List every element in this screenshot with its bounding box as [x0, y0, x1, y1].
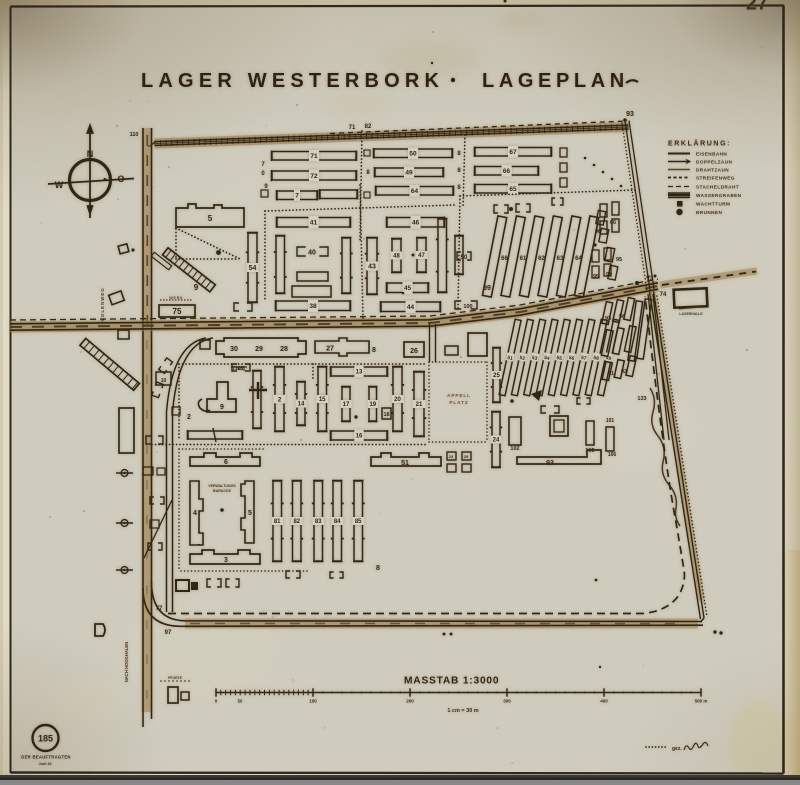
svg-text:LAGEPLAN: LAGEPLAN [482, 70, 629, 92]
svg-text:W E R K: W E R K [169, 296, 183, 300]
svg-text:PLATZ: PLATZ [449, 400, 468, 405]
svg-text:16: 16 [356, 434, 363, 440]
svg-text:24: 24 [493, 438, 500, 444]
svg-text:93: 93 [605, 316, 611, 322]
svg-text:8: 8 [376, 565, 380, 572]
svg-text:13: 13 [356, 370, 363, 376]
svg-text:101: 101 [606, 418, 615, 424]
svg-text:65: 65 [509, 186, 517, 193]
svg-text:40: 40 [308, 250, 316, 257]
svg-text:200: 200 [406, 699, 414, 704]
svg-text:41: 41 [310, 220, 318, 227]
svg-text:102: 102 [510, 446, 519, 452]
svg-text:71: 71 [310, 153, 318, 160]
svg-text:EISENBAHN: EISENBAHN [696, 152, 727, 157]
svg-text:23: 23 [449, 454, 454, 459]
svg-text:17: 17 [343, 402, 350, 408]
svg-text:49: 49 [405, 170, 413, 177]
svg-text:DOPPELZAUN: DOPPELZAUN [696, 160, 733, 165]
svg-text:15: 15 [319, 397, 326, 403]
svg-text:O: O [117, 174, 124, 184]
svg-text:133: 133 [637, 396, 646, 402]
svg-text:20: 20 [394, 397, 401, 403]
svg-text:45: 45 [404, 285, 412, 292]
svg-text:NACH HOOGHALEN: NACH HOOGHALEN [124, 642, 129, 682]
svg-text:30: 30 [230, 346, 238, 353]
svg-text:VERWALTUNGS: VERWALTUNGS [208, 484, 236, 488]
svg-text:51: 51 [401, 460, 409, 467]
svg-text:1 cm = 30 m: 1 cm = 30 m [447, 708, 478, 714]
svg-text:43: 43 [368, 264, 376, 271]
svg-text:W: W [55, 180, 64, 190]
svg-text:66: 66 [503, 168, 511, 175]
svg-text:82: 82 [365, 124, 372, 130]
svg-text:4: 4 [193, 510, 197, 517]
svg-text:19: 19 [369, 402, 376, 408]
svg-text:93: 93 [546, 460, 554, 467]
svg-text:84: 84 [334, 519, 341, 525]
svg-text:93: 93 [626, 111, 634, 118]
svg-text:50: 50 [461, 255, 468, 261]
svg-text:95: 95 [593, 274, 599, 280]
svg-text:LAGERHALLE: LAGERHALLE [679, 312, 703, 316]
svg-text:2: 2 [278, 396, 282, 403]
svg-text:82: 82 [293, 519, 300, 525]
svg-text:92: 92 [621, 369, 627, 375]
svg-text:75: 75 [173, 307, 182, 316]
svg-text:44: 44 [407, 304, 415, 311]
svg-text:54: 54 [249, 265, 257, 272]
svg-text:27: 27 [326, 346, 334, 353]
svg-text:48: 48 [393, 254, 400, 260]
svg-text:26: 26 [410, 348, 418, 355]
svg-text:81: 81 [274, 519, 281, 525]
svg-text:300: 300 [503, 699, 511, 704]
svg-text:100: 100 [309, 699, 317, 704]
svg-text:500 m: 500 m [695, 699, 708, 704]
svg-text:[103]: [103] [233, 366, 245, 372]
svg-text:97: 97 [165, 630, 172, 636]
svg-text:7: 7 [295, 193, 299, 200]
svg-text:95: 95 [616, 257, 622, 263]
svg-text:100: 100 [463, 304, 472, 310]
svg-text:98: 98 [606, 272, 612, 278]
svg-text:77: 77 [156, 606, 163, 612]
svg-text:M O L E N W E G: M O L E N W E G [100, 288, 105, 321]
svg-text:21: 21 [416, 402, 423, 408]
svg-text:50: 50 [409, 151, 417, 158]
svg-text:2: 2 [187, 414, 191, 421]
svg-text:9: 9 [220, 404, 224, 411]
svg-text:MASSTAB 1:3000: MASSTAB 1:3000 [404, 676, 499, 687]
svg-text:110: 110 [130, 132, 139, 138]
svg-text:67: 67 [509, 149, 517, 156]
svg-text:BARACKE: BARACKE [213, 489, 232, 493]
svg-text:98: 98 [619, 314, 625, 320]
svg-text:BRUNNEN: BRUNNEN [696, 210, 722, 215]
svg-text:400: 400 [600, 699, 608, 704]
svg-text:WACHTTURM: WACHTTURM [696, 202, 730, 207]
svg-text:72: 72 [310, 173, 318, 180]
svg-text:185: 185 [38, 734, 53, 744]
svg-text:74: 74 [660, 292, 667, 298]
svg-text:25: 25 [493, 373, 500, 379]
svg-text:DER BEAUFTRAGTEN: DER BEAUFTRAGTEN [21, 755, 70, 760]
svg-text:71: 71 [349, 125, 356, 131]
svg-text:85: 85 [355, 519, 362, 525]
svg-text:APPELL: APPELL [447, 393, 471, 398]
svg-text:8: 8 [372, 347, 376, 354]
svg-text:29: 29 [255, 346, 263, 353]
svg-text:106: 106 [608, 452, 617, 458]
svg-text:PFORTE: PFORTE [168, 676, 182, 680]
svg-text:47: 47 [418, 253, 425, 259]
svg-text:N: N [87, 149, 94, 159]
svg-text:64: 64 [411, 188, 419, 195]
svg-text:38: 38 [309, 303, 317, 310]
svg-text:ERKLÄRUNG:: ERKLÄRUNG: [668, 140, 731, 148]
svg-text:46: 46 [412, 220, 420, 227]
svg-text:9: 9 [194, 283, 199, 292]
svg-text:14: 14 [298, 402, 305, 408]
svg-text:96: 96 [595, 229, 601, 235]
svg-text:DRAHTZAUN: DRAHTZAUN [696, 168, 729, 173]
svg-text:10: 10 [161, 378, 167, 384]
svg-text:gez.: gez. [672, 746, 682, 752]
svg-text:5: 5 [208, 214, 213, 223]
svg-text:5: 5 [248, 510, 252, 517]
svg-text:LAGER WESTERBORK: LAGER WESTERBORK [141, 70, 444, 92]
svg-text:STACHELDRAHT: STACHELDRAHT [696, 185, 739, 190]
svg-text:28: 28 [280, 346, 288, 353]
svg-text:STREIFENWEG: STREIFENWEG [696, 176, 735, 181]
svg-text:06: 06 [610, 220, 616, 226]
svg-text:Juni 44: Juni 44 [38, 762, 52, 766]
svg-text:50: 50 [238, 699, 243, 704]
svg-text:WASSERGRABEN: WASSERGRABEN [696, 193, 742, 198]
svg-text:41: 41 [608, 371, 614, 377]
svg-text:25: 25 [464, 454, 469, 459]
svg-text:27: 27 [746, 0, 768, 15]
svg-text:6: 6 [224, 459, 228, 466]
svg-text:83: 83 [315, 519, 322, 525]
svg-text:18: 18 [383, 412, 389, 418]
svg-text:99: 99 [483, 285, 491, 292]
svg-text:3: 3 [224, 557, 228, 564]
